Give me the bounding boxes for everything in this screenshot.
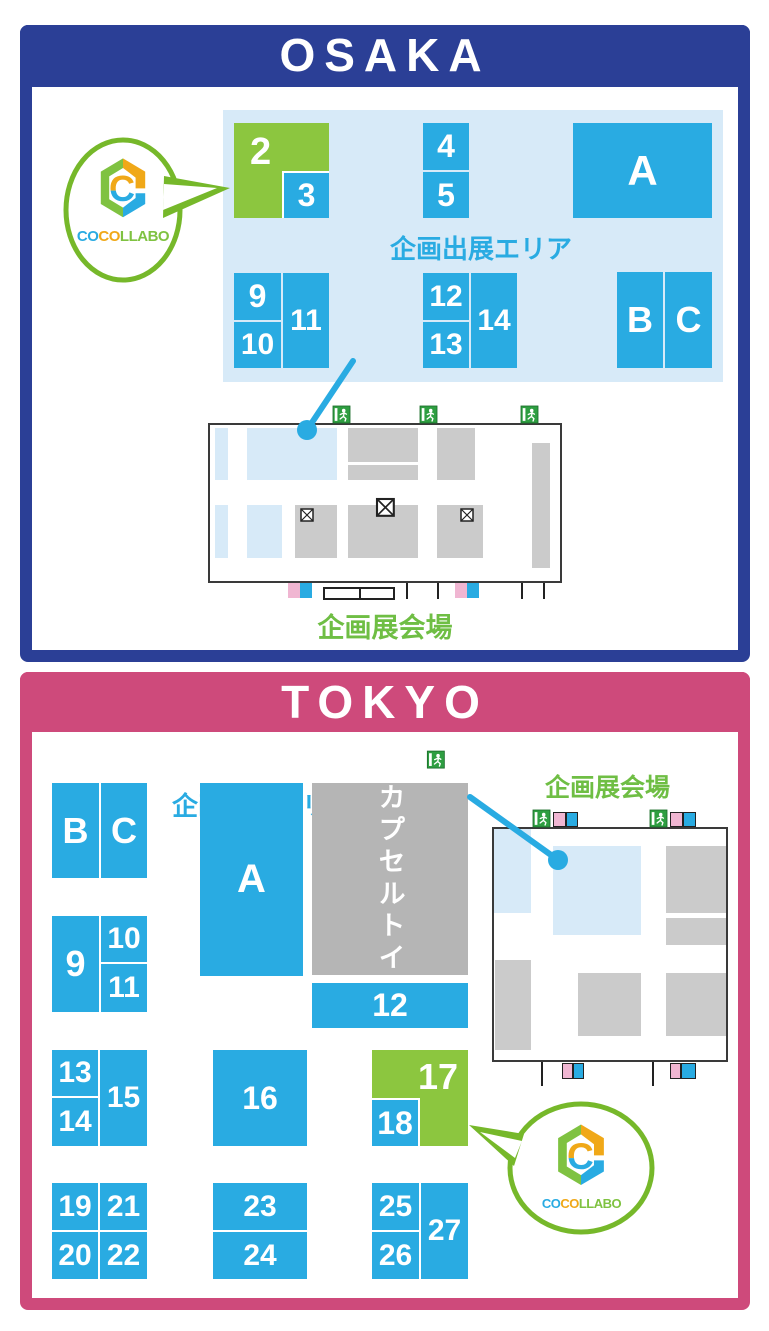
tokyo-header: TOKYO xyxy=(20,672,750,732)
osaka-hall-label: 企画展会場 xyxy=(305,606,465,645)
booth-tokyo-9: 9 xyxy=(52,916,99,1012)
booth-tokyo-21: 21 xyxy=(100,1183,147,1230)
osaka-door-blue-2 xyxy=(467,583,479,598)
osaka-map-highlight-area xyxy=(247,428,337,480)
booth-tokyo-24: 24 xyxy=(213,1232,307,1279)
booth-tokyo-C: C xyxy=(101,783,147,878)
booth-osaka-11: 11 xyxy=(283,273,329,368)
osaka-area-label: 企画出展エリア xyxy=(390,229,560,266)
osaka-map-block-1 xyxy=(348,428,418,462)
cocollabo-logo-osaka: C C xyxy=(93,156,153,222)
booth-tokyo-22: 22 xyxy=(100,1232,147,1279)
booth-osaka-14: 14 xyxy=(471,273,517,368)
booth-tokyo-12: 12 xyxy=(312,983,468,1028)
osaka-map-block-5 xyxy=(295,505,337,558)
osaka-header: OSAKA xyxy=(20,25,750,87)
booth-tokyo-A: A xyxy=(200,783,303,976)
osaka-door-blue-1 xyxy=(300,583,312,598)
booth-osaka-5: 5 xyxy=(423,172,469,218)
cocollabo-wordmark-tokyo: COCOLLABO xyxy=(534,1196,629,1211)
booth-tokyo-14: 14 xyxy=(52,1098,98,1146)
osaka-map-block-2 xyxy=(348,465,418,480)
booth-osaka-10: 10 xyxy=(234,322,281,368)
tokyo-map-highlight-area xyxy=(553,846,641,935)
booth-osaka-C: C xyxy=(665,272,712,368)
osaka-map-block-3 xyxy=(437,428,475,480)
tokyo-hall-label: 企画展会場 xyxy=(535,768,680,804)
booth-tokyo-10: 10 xyxy=(101,916,147,962)
booth-tokyo-11: 11 xyxy=(101,964,147,1012)
osaka-map-block-4 xyxy=(532,443,550,568)
osaka-map-aisle-strip-2 xyxy=(215,505,228,558)
tokyo-map-block-5 xyxy=(666,973,726,1036)
booth-tokyo-20: 20 xyxy=(52,1232,98,1279)
osaka-map-block-6 xyxy=(348,505,418,558)
tokyo-door-pink-bot-2 xyxy=(670,1063,681,1079)
booth-tokyo-23: 23 xyxy=(213,1183,307,1230)
cocollabo-logo-tokyo: C C xyxy=(550,1122,612,1190)
osaka-door-pink-1 xyxy=(288,583,300,598)
tokyo-map-block-2 xyxy=(666,918,726,945)
osaka-door-tick-4 xyxy=(543,583,545,599)
booth-osaka-13: 13 xyxy=(423,322,469,368)
booth-tokyo-25: 25 xyxy=(372,1183,419,1230)
tokyo-door-pink-bot-1 xyxy=(562,1063,573,1079)
booth-tokyo-27: 27 xyxy=(421,1183,468,1279)
tokyo-map-block-4 xyxy=(578,973,641,1036)
booth-tokyo-26: 26 xyxy=(372,1232,419,1279)
osaka-door-tick-1 xyxy=(406,583,408,599)
booth-tokyo-18: 18 xyxy=(372,1098,420,1146)
cocollabo-inner-c: C C xyxy=(109,169,139,209)
osaka-title: OSAKA xyxy=(279,29,490,81)
cocollabo-wordmark-osaka: COCOLLABO xyxy=(68,228,178,245)
osaka-door-tick-3 xyxy=(521,583,523,599)
booth-osaka-3: 3 xyxy=(282,171,329,218)
capsule-toy-area: カプセルトイ xyxy=(312,783,468,975)
tokyo-door-blue-bot-1 xyxy=(573,1063,584,1079)
tokyo-map-block-1 xyxy=(666,846,726,913)
tokyo-map-block-3 xyxy=(495,960,531,1050)
tokyo-door-blue-top-2 xyxy=(683,812,696,827)
tokyo-door-pink-top-2 xyxy=(670,812,683,827)
tokyo-door-pink-top-1 xyxy=(553,812,566,827)
booth-tokyo-B: B xyxy=(52,783,99,878)
cocollabo-inner-c: C C xyxy=(567,1136,597,1177)
osaka-reception-table xyxy=(323,587,395,600)
osaka-door-pink-2 xyxy=(455,583,467,598)
booth-osaka-9: 9 xyxy=(234,273,281,320)
booth-tokyo-16: 16 xyxy=(213,1050,307,1146)
booth-tokyo-19: 19 xyxy=(52,1183,98,1230)
booth-osaka-12: 12 xyxy=(423,273,469,320)
booth-osaka-A: A xyxy=(573,123,712,218)
booth-osaka-4: 4 xyxy=(423,123,469,170)
osaka-map-aisle-strip-1 xyxy=(215,428,228,480)
booth-osaka-B: B xyxy=(617,272,663,368)
tokyo-door-blue-top-1 xyxy=(566,812,578,827)
osaka-map-lightblue-2 xyxy=(247,505,282,558)
tokyo-title: TOKYO xyxy=(281,676,489,728)
osaka-door-tick-2 xyxy=(437,583,439,599)
tokyo-door-blue-bot-2 xyxy=(681,1063,696,1079)
exhibition-floor-map: OSAKA 企画出展エリア 2 3 4 5 A 9 10 11 12 13 14… xyxy=(0,0,769,1331)
tokyo-door-tick-2 xyxy=(652,1062,654,1086)
tokyo-map-lightblue-1 xyxy=(494,829,531,913)
tokyo-door-tick-1 xyxy=(541,1062,543,1086)
osaka-map-block-7 xyxy=(437,505,483,558)
booth-tokyo-13: 13 xyxy=(52,1050,98,1096)
booth-tokyo-15: 15 xyxy=(100,1050,147,1146)
